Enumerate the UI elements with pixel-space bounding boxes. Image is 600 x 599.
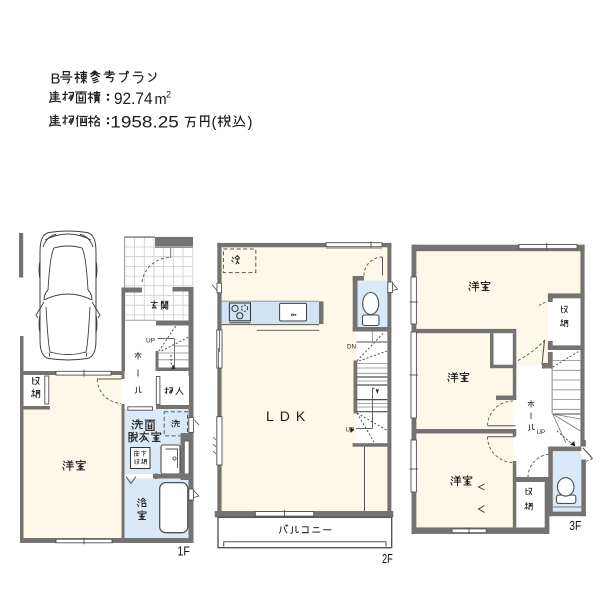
svg-text:1F: 1F: [178, 544, 190, 559]
svg-text:2: 2: [166, 90, 171, 100]
svg-text:UP: UP: [146, 338, 155, 345]
svg-text:3F: 3F: [569, 518, 581, 533]
svg-text:2F: 2F: [382, 551, 393, 566]
svg-text:DN: DN: [347, 344, 356, 351]
svg-text:UP: UP: [537, 429, 546, 436]
svg-text:1958.25: 1958.25: [110, 114, 179, 132]
svg-text:(: (: [212, 114, 217, 131]
svg-text:92.74: 92.74: [114, 90, 153, 108]
svg-text:LDK: LDK: [266, 408, 311, 424]
svg-text:): ): [248, 114, 253, 131]
svg-text:m: m: [155, 92, 167, 108]
svg-text:B: B: [51, 71, 61, 88]
